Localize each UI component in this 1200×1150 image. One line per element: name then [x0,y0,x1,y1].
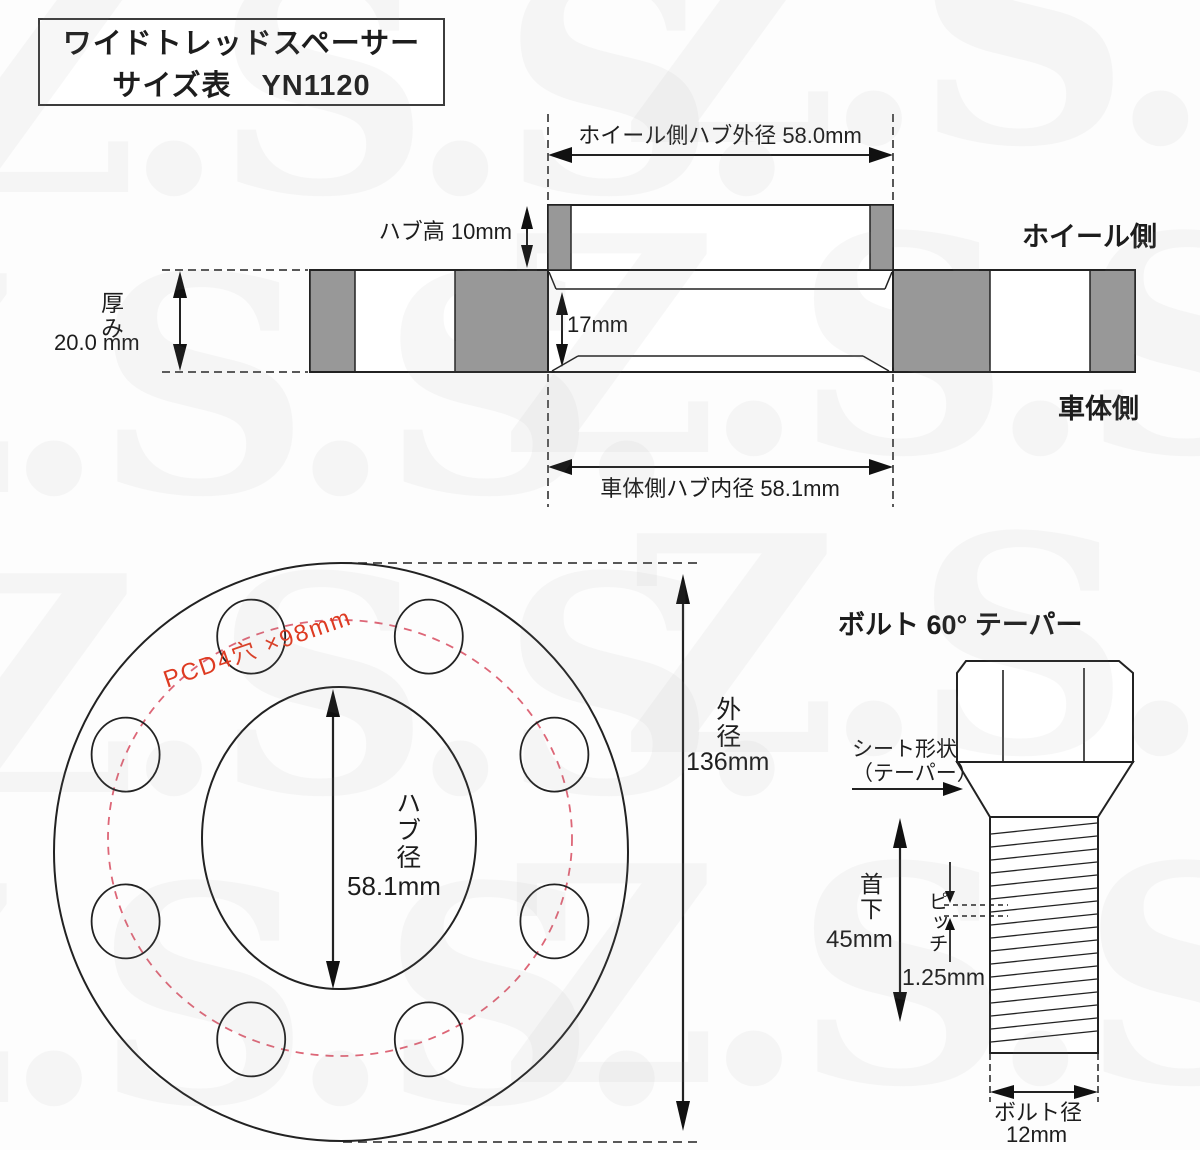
bolt-taper-seat [957,762,1133,817]
bolt-title: ボルト 60° テーパー [838,610,1083,641]
dim-hub-dia [326,689,340,989]
outer-dia-label: 外径 [712,696,741,750]
cross-section-view [162,114,1135,507]
title-line2: サイズ表 YN1120 [112,62,370,104]
neck-label: 首下 [856,872,882,922]
dim-neck-length [893,818,907,1022]
hub-dia-value: 58.1mm [347,872,441,902]
hub-ring [548,205,893,270]
dim-hub-outer-label: ホイール側ハブ外径 58.0mm [545,123,895,148]
bolt-hole [92,718,160,792]
spacer-outer-circle [54,563,628,1141]
plate-gray-right-end [1090,270,1135,372]
bolt-head [957,661,1133,762]
dim-bolt-dia [990,1085,1098,1099]
dim-hub-outer [548,147,893,163]
bolt-dia-value: 12mm [1006,1122,1067,1147]
thickness-value: 20.0 mm [54,330,140,355]
hub-ring-wall-left [548,205,571,270]
plate-gray-right-mid [893,270,990,372]
wheel-side-label: ホイール側 [1022,222,1157,253]
bolt-shank [990,817,1098,1053]
seat-shape-label: シート形状 （テーパー） [852,738,978,786]
technical-drawing-svg [0,0,1200,1150]
front-view [54,563,702,1142]
bolt-hole [395,600,463,674]
plate-gray-left-mid [455,270,548,372]
hub-height-label: ハブ高 10mm [350,219,512,244]
hub-ring-wall-right [870,205,893,270]
pitch-label: ピッチ [924,891,947,954]
neck-value: 45mm [826,926,893,954]
bolt-view [852,661,1133,1102]
outer-dia-value: 136mm [686,748,769,777]
title-box: ワイドトレッドスペーサー サイズ表 YN1120 [38,18,445,106]
bolt-hole [217,1002,285,1076]
dim-hub-inner [548,459,893,475]
bolt-hole [520,884,588,958]
plate-gray-left-end [310,270,355,372]
dim-hub-height [521,206,533,268]
bore-depth-label: 17mm [567,312,628,337]
pitch-value: 1.25mm [902,964,985,990]
dim-thickness [173,271,187,371]
hub-dia-label: ハブ径 [392,790,421,871]
dim-hub-inner-label: 車体側ハブ内径 58.1mm [545,476,895,501]
hub-bore-circle [202,687,476,989]
body-side-label: 車体側 [1058,394,1139,425]
dim-outer-dia [676,574,690,1131]
spacer-size-diagram: ワイドトレッドスペーサー サイズ表 YN1120 ホイール側ハブ外径 58.0m… [0,0,1200,1150]
title-line1: ワイドトレッドスペーサー [63,20,420,62]
